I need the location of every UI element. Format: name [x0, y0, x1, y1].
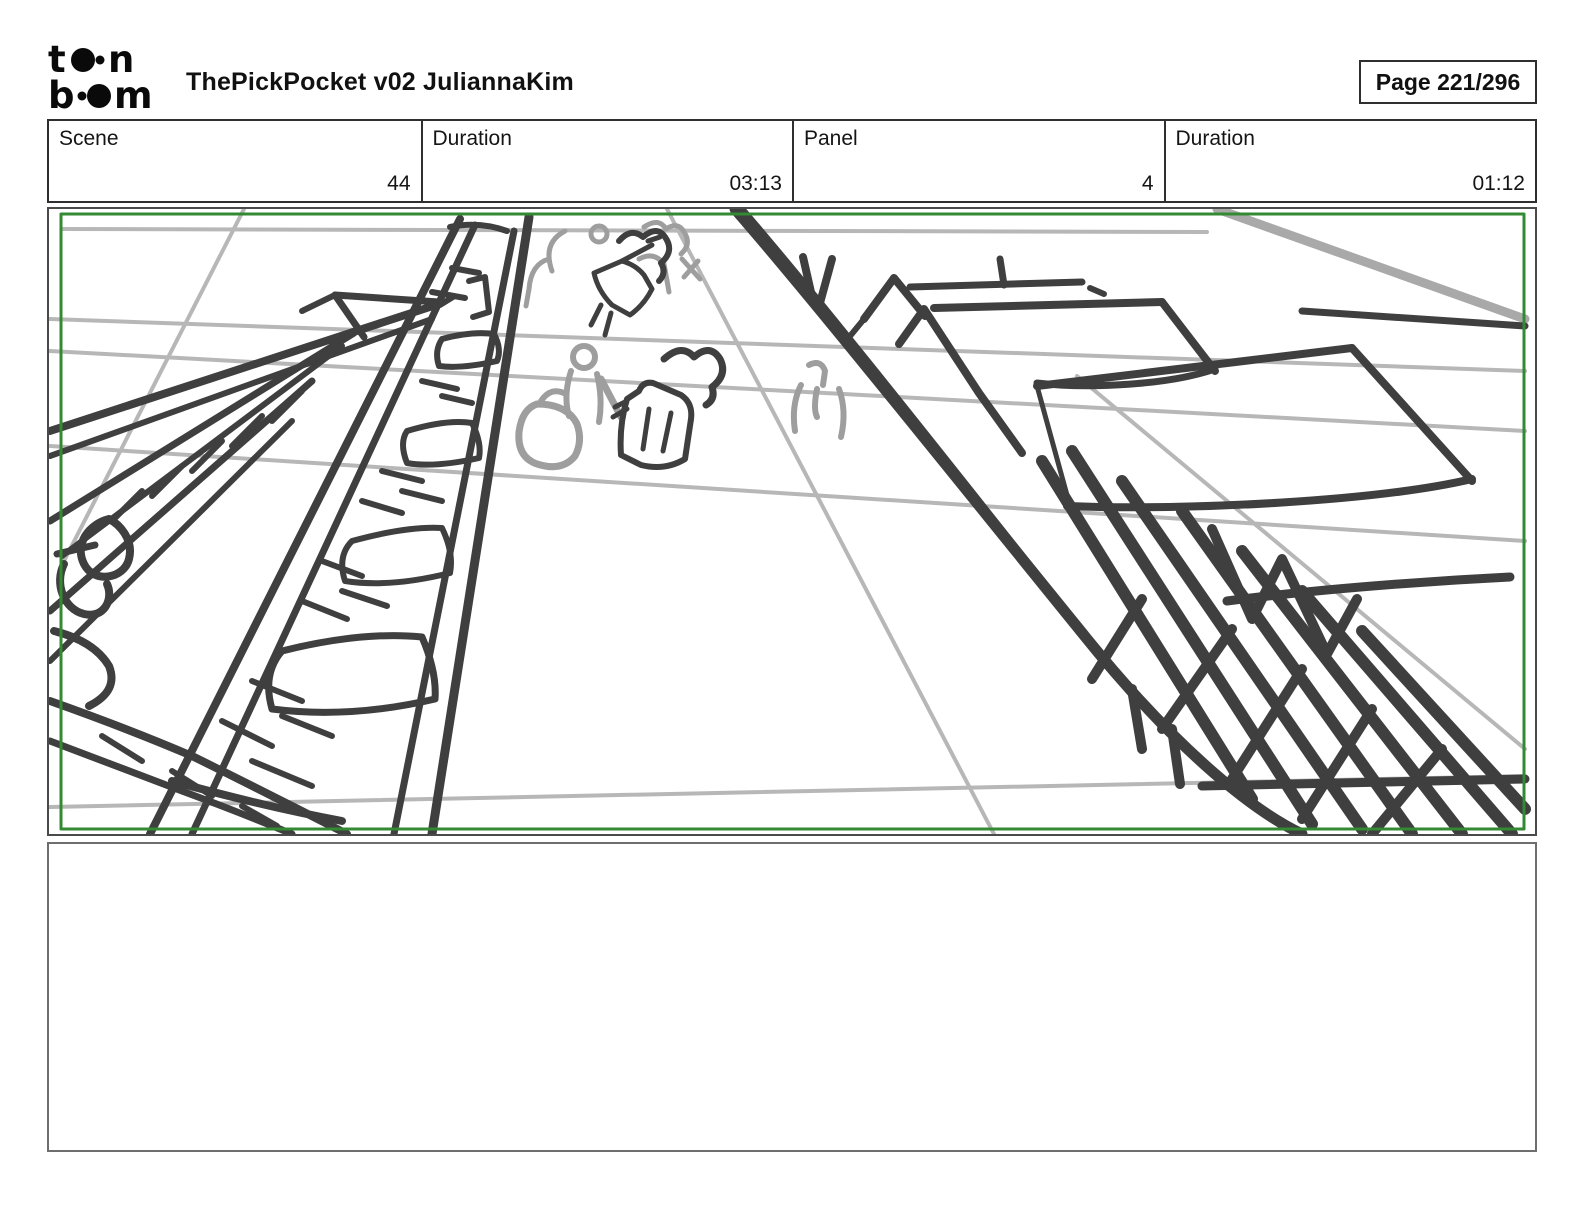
lone-pedestrian [794, 363, 844, 437]
scene-cell: Scene 44 [49, 121, 421, 201]
metadata-table: Scene 44 Duration 03:13 Panel 4 Duration… [47, 119, 1537, 203]
scene-value: 44 [387, 172, 410, 196]
scene-duration-label: Duration [433, 127, 512, 151]
hatched-building [1042, 451, 1525, 834]
panel-label: Panel [804, 127, 858, 151]
logo-dot-small-top [96, 56, 105, 65]
train-sketch [150, 217, 529, 834]
street-and-rooftops [735, 209, 1525, 834]
panel-value: 4 [1142, 172, 1154, 196]
logo-letter-b: b [48, 74, 75, 116]
panel-duration-label: Duration [1176, 127, 1255, 151]
storyboard-sketch [49, 209, 1535, 834]
toonboom-logo: t n b m [47, 42, 175, 116]
crowd-group-top [526, 222, 700, 335]
storyboard-panel [47, 207, 1537, 836]
panel-cell: Panel 4 [792, 121, 1164, 201]
page-number-box: Page 221/296 [1359, 60, 1537, 104]
scene-label: Scene [59, 127, 119, 151]
page-number-label: Page 221/296 [1376, 69, 1521, 96]
left-structure [50, 295, 453, 834]
panel-duration-value: 01:12 [1472, 172, 1525, 196]
logo-dot-large-top [71, 48, 95, 72]
storyboard-page: t n b m ThePickPocket v02 JuliannaKim Pa… [0, 0, 1584, 1224]
scene-duration-cell: Duration 03:13 [421, 121, 793, 201]
logo-dot-large-bottom [87, 84, 111, 108]
logo-letter-m: m [114, 74, 153, 116]
scene-duration-value: 03:13 [729, 172, 782, 196]
crowd-group-middle [519, 346, 723, 467]
caption-notes-box [47, 842, 1537, 1152]
logo-dot-small-bottom [78, 92, 87, 101]
project-title: ThePickPocket v02 JuliannaKim [186, 68, 574, 97]
panel-duration-cell: Duration 01:12 [1164, 121, 1536, 201]
